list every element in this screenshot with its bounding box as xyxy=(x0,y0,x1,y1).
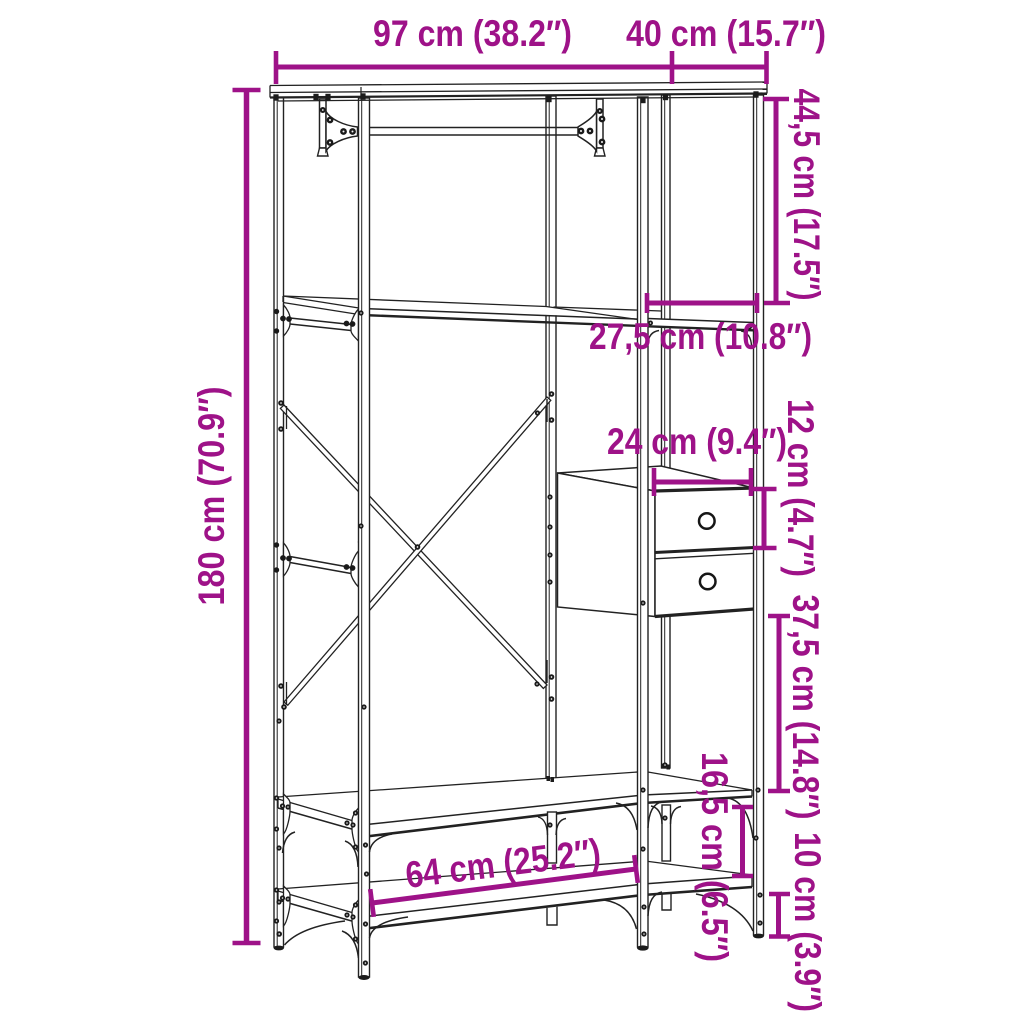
svg-text:97 cm (38.2″): 97 cm (38.2″) xyxy=(373,12,572,54)
svg-text:24 cm (9.4″): 24 cm (9.4″) xyxy=(607,420,787,462)
svg-text:10 cm (3.9″): 10 cm (3.9″) xyxy=(787,832,829,1012)
svg-text:37,5 cm (14.8″): 37,5 cm (14.8″) xyxy=(785,595,827,820)
svg-text:12 cm (4.7″): 12 cm (4.7″) xyxy=(780,399,822,577)
svg-text:180 cm (70.9″): 180 cm (70.9″) xyxy=(190,387,232,606)
svg-text:44,5 cm (17.5″): 44,5 cm (17.5″) xyxy=(786,89,828,301)
svg-text:40 cm (15.7″): 40 cm (15.7″) xyxy=(626,12,826,54)
svg-text:16,5 cm (6.5″): 16,5 cm (6.5″) xyxy=(694,752,736,962)
svg-text:27,5 cm (10.8″): 27,5 cm (10.8″) xyxy=(589,315,812,357)
